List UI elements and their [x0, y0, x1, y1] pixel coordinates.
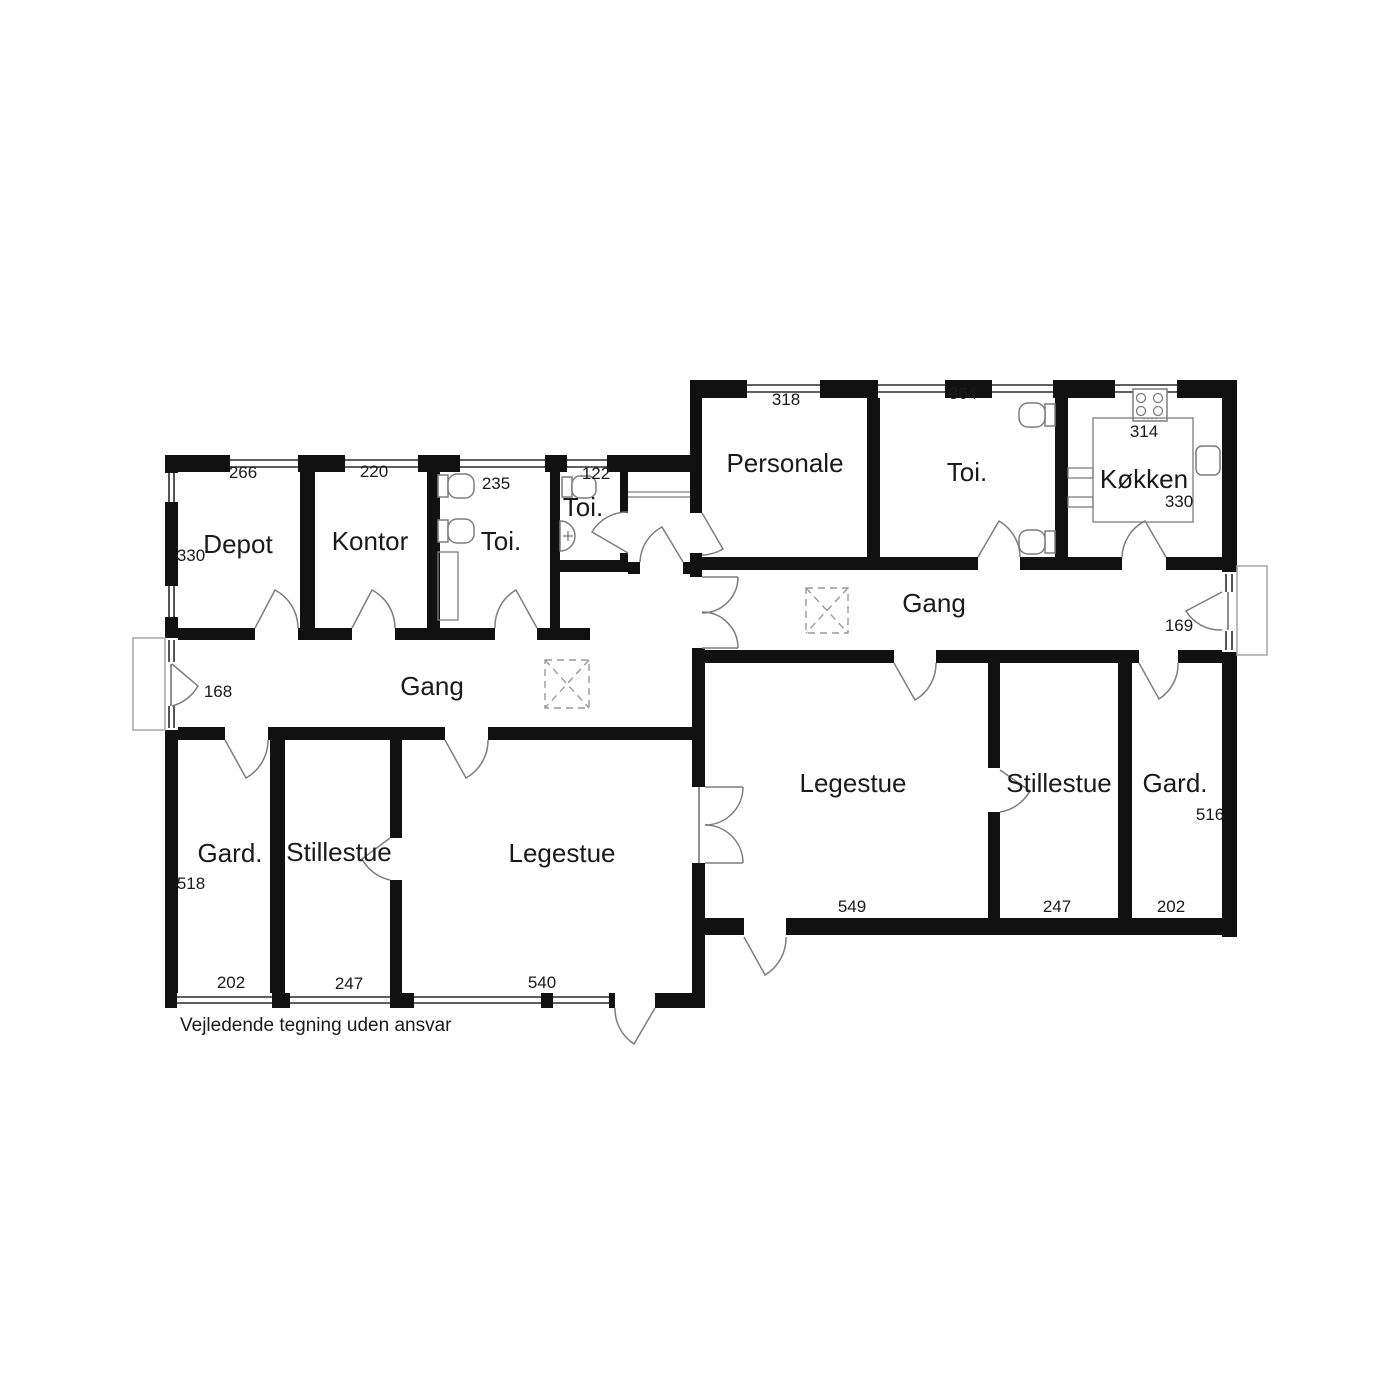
room-label-depot: Depot: [203, 529, 273, 559]
dim-gard-right-width: 202: [1157, 897, 1185, 916]
wall-right-east: [1222, 380, 1237, 937]
room-label-kontor: Kontor: [332, 526, 409, 556]
dim-depot-depth: 330: [177, 546, 205, 565]
window-icon: [1222, 574, 1237, 592]
wall-right-west-4: [692, 863, 705, 1008]
kitchen-cabinet: [1068, 497, 1093, 507]
door-swing-icon-personale: [702, 513, 723, 555]
dim-gang-left: 168: [204, 682, 232, 701]
window-icon: [1222, 631, 1237, 650]
stove-icon: [1133, 389, 1167, 421]
room-label-stillestue-left: Stillestue: [286, 837, 392, 867]
wall-toi-toi122: [550, 455, 560, 640]
toilet-icon: [1019, 403, 1055, 427]
dim-legestue-left: 540: [528, 973, 556, 992]
sink-icon: [560, 521, 575, 551]
window-icon: [290, 993, 390, 1008]
door-swing-icon-toi-left: [495, 590, 537, 628]
counter-lines: [628, 492, 690, 497]
dim-stillestue-left: 247: [335, 974, 363, 993]
window-icon: [992, 380, 1053, 398]
window-icon: [177, 993, 272, 1008]
window-icon: [165, 640, 178, 662]
room-label-toi-small: Toi.: [563, 492, 603, 522]
door-swing-icon-gard-left: [225, 740, 268, 778]
hatch-icon: [806, 588, 848, 633]
floorplan-drawing: Depot 266 330 Kontor 220 Toi. 235 Toi. 1…: [0, 0, 1400, 1400]
room-label-gard-right: Gard.: [1142, 768, 1207, 798]
room-label-gard-left: Gard.: [197, 838, 262, 868]
dim-koekken-width: 314: [1130, 422, 1158, 441]
toilet-screen: [438, 552, 458, 620]
room-label-koekken: Køkken: [1100, 464, 1188, 494]
door-swing-icon-toi-right: [978, 521, 1020, 557]
dim-personale: 318: [772, 390, 800, 409]
dim-gard-right-depth: 516: [1196, 805, 1224, 824]
room-label-legestue-left: Legestue: [509, 838, 616, 868]
wall-right-west-1: [690, 380, 702, 513]
entry-porch-left: [133, 638, 165, 730]
room-label-legestue-right: Legestue: [800, 768, 907, 798]
door-swing-icon-depot: [255, 590, 298, 628]
wall-toi-koekken: [1055, 380, 1068, 570]
dim-kontor-width: 220: [360, 462, 388, 481]
dim-stillestue-right: 247: [1043, 897, 1071, 916]
window-icon: [165, 706, 178, 728]
dim-gard-left-depth: 518: [177, 874, 205, 893]
kitchen-cabinet: [1068, 468, 1093, 478]
window-icon: [165, 586, 178, 617]
door-swing-icon-koekken: [1122, 521, 1166, 557]
wall-depot-kontor: [300, 455, 315, 640]
window-icon: [460, 455, 545, 472]
door-swing-icon-legestue-left-exit: [615, 1008, 655, 1044]
room-label-gang-right: Gang: [902, 588, 966, 618]
room-label-stillestue-right: Stillestue: [1006, 768, 1112, 798]
door-swing-icon-legestue-left: [445, 740, 488, 778]
kitchen-sink-icon: [1196, 446, 1220, 475]
door-swing-icon-kontor: [352, 590, 395, 628]
room-label-toi-left: Toi.: [481, 526, 521, 556]
door-swing-icon-vestibule: [640, 527, 683, 562]
dim-toi-right: 364: [949, 384, 977, 403]
window-icon: [878, 380, 945, 398]
door-swing-icon-legestue-right: [894, 663, 936, 700]
window-icon: [414, 993, 541, 1008]
dim-legestue-right: 549: [838, 897, 866, 916]
room-label-toi-right: Toi.: [947, 457, 987, 487]
floorplan-canvas: Depot 266 330 Kontor 220 Toi. 235 Toi. 1…: [0, 0, 1400, 1400]
dim-depot-width: 266: [229, 463, 257, 482]
toilet-icon: [1019, 530, 1055, 554]
walls: [165, 380, 1237, 1008]
disclaimer-caption: Vejledende tegning uden ansvar: [180, 1015, 452, 1036]
dim-gard-left-width: 202: [217, 973, 245, 992]
dim-gang-right: 169: [1165, 616, 1193, 635]
room-label-gang-left: Gang: [400, 671, 464, 701]
wall-stillestueR-gardR: [1118, 663, 1132, 918]
wall-gard-stillestue: [270, 740, 285, 993]
dim-toi-small-width: 122: [582, 464, 610, 483]
dim-toi-left-width: 235: [482, 474, 510, 493]
window-icon: [553, 993, 609, 1008]
dim-koekken-depth: 330: [1165, 492, 1193, 511]
toilet-icon: [438, 474, 474, 498]
wall-right-west-3: [692, 648, 705, 787]
room-label-personale: Personale: [726, 448, 843, 478]
wall-personale-toi: [867, 380, 880, 570]
door-swing-icon-gard-right: [1139, 663, 1178, 699]
door-swing-icon-legestue-right-exit: [744, 937, 786, 975]
entry-porch-right: [1237, 566, 1267, 655]
window-icon: [165, 473, 178, 502]
hatch-icon: [545, 660, 589, 708]
double-door-icon-legestue: [699, 787, 743, 863]
toilet-icon: [438, 519, 474, 543]
double-door-icon-gangR-entry: [702, 577, 738, 648]
wall-toi122-south: [550, 560, 628, 572]
